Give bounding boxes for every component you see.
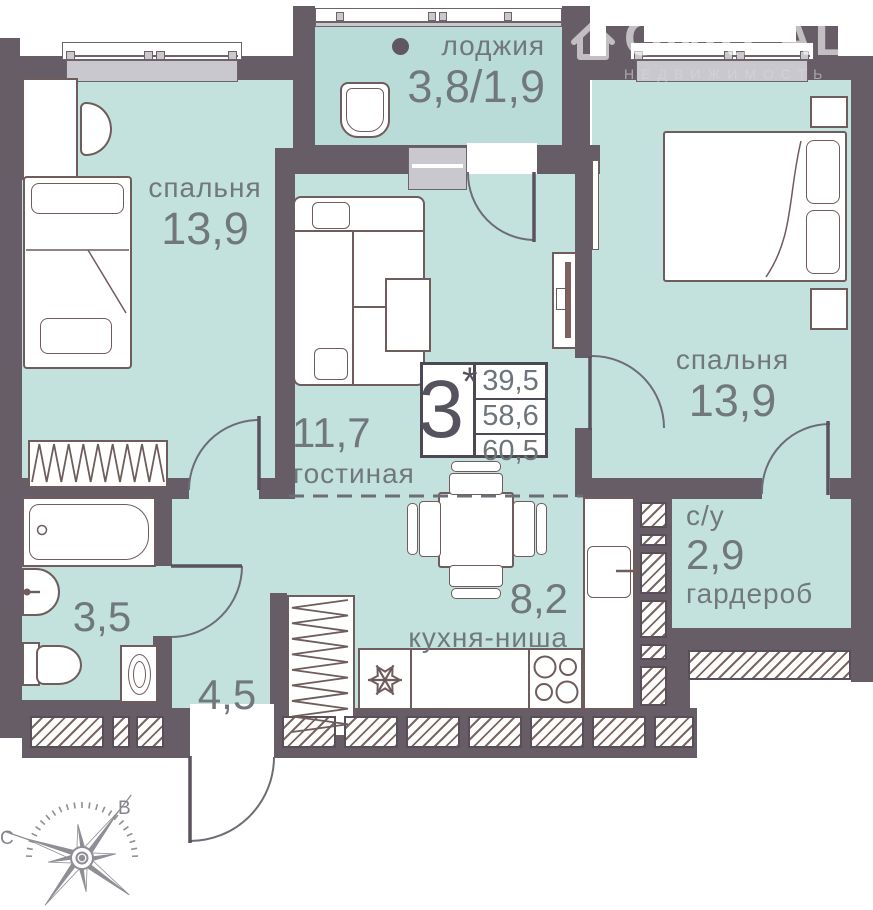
room-area: 13,9 (110, 204, 300, 254)
watermark-house-icon (566, 12, 620, 66)
bedroom-right-label-block: спальня 13,9 (635, 344, 830, 426)
wall-loggia-left (293, 6, 315, 150)
vent-shaft (640, 666, 667, 706)
pillow (806, 140, 840, 204)
glazing-mullion (439, 12, 447, 21)
bathtub-inner (29, 504, 149, 560)
room-area: 8,2 (370, 576, 568, 622)
loggia-label-block: лоджия 3,8/1,9 (330, 30, 545, 112)
washing-machine-door-inner (133, 661, 146, 688)
wall-hatch (136, 716, 164, 748)
wall-wardrobe-bottom (672, 628, 855, 650)
wall-hatch (30, 716, 104, 748)
door-opening (762, 478, 830, 499)
glazing-mullion (504, 12, 512, 21)
vent-shaft (640, 502, 667, 528)
room-area: 3,8/1,9 (330, 62, 545, 112)
kitchen-label-block: 8,2 кухня-ниша (370, 576, 568, 654)
floor-plan: С В лоджия 3,8/1,9 спальня 13,9 спальня … (0, 0, 873, 910)
rooms-count-cell: 3 * (423, 365, 476, 455)
areas-cells: 39,5 58,6 60,5 (476, 365, 545, 455)
tv-bracket (556, 288, 566, 310)
balcony-window-line (412, 164, 463, 168)
wc-wardrobe-label-block: с/у 2,9 гардероб (686, 500, 813, 610)
wardrobe-rail (28, 440, 168, 488)
room-label: лоджия (442, 30, 545, 61)
kitchen-sink (587, 546, 631, 598)
wall-right (851, 56, 873, 682)
chair-seat (449, 473, 503, 495)
room-label: спальня (110, 172, 300, 204)
wall-hatch (688, 650, 851, 680)
chair-back (407, 503, 418, 555)
room-label: спальня (635, 344, 830, 376)
door-opening (153, 566, 172, 636)
toilet-bowl (36, 645, 82, 685)
area-total: 60,5 (476, 435, 545, 468)
wall-hatch (468, 716, 522, 748)
door-arc-entrance (190, 757, 274, 841)
bed-bench (40, 318, 112, 354)
sofa-pillow (312, 202, 350, 229)
door-opening-balcony (467, 143, 537, 174)
desk (22, 78, 78, 180)
window-hinge (228, 51, 237, 60)
door-opening (575, 358, 592, 428)
kitchen-counter (410, 648, 530, 710)
chair-back (536, 503, 547, 555)
living-label: гостиная (293, 458, 415, 490)
wall-hatch (282, 716, 336, 748)
room-label: гардероб (686, 578, 813, 610)
area-living: 39,5 (476, 365, 545, 400)
watermark-subtitle: НЕДВИЖИМОСТЬ (624, 66, 847, 82)
window-hinge (156, 51, 165, 60)
room-area: 2,9 (686, 532, 813, 578)
loggia-glazing-band (315, 22, 562, 27)
nightstand (810, 96, 848, 128)
coffee-table (385, 278, 431, 352)
watermark: ONREAL НЕДВИЖИМОСТЬ (566, 12, 866, 82)
loggia-dot-icon (392, 38, 409, 55)
area-no-balcony: 58,6 (476, 400, 545, 435)
room-label: кухня-ниша (370, 622, 568, 654)
wall-living-bedroom (575, 148, 592, 358)
rooms-count: 3 (418, 369, 464, 451)
wall-hatch (530, 716, 584, 748)
vent-shaft (640, 644, 667, 660)
balcony-window (408, 147, 467, 190)
wall-hatch (654, 716, 694, 748)
watermark-text: ONREAL НЕДВИЖИМОСТЬ (624, 12, 847, 82)
sofa-line (294, 230, 424, 232)
compass-rose (6, 795, 138, 905)
nightstand (810, 288, 848, 330)
kitchen-counter-right (583, 497, 635, 710)
glazing-mullion (336, 12, 344, 21)
apartment-spec-box: 3 * 39,5 58,6 60,5 (420, 362, 548, 458)
wall-left (0, 56, 22, 738)
sofa-line (352, 232, 354, 384)
sofa-pillow (314, 348, 348, 380)
compass-north-label: С (0, 828, 14, 849)
vent-shaft (640, 600, 667, 638)
tv-icon (592, 160, 599, 250)
window-sill (66, 60, 238, 82)
stove (528, 648, 583, 710)
room-label: с/у (686, 500, 813, 532)
bathroom-area: 3,5 (70, 594, 134, 640)
vent-shaft (640, 552, 667, 594)
window-hinge (144, 51, 153, 60)
bedroom-left-label-block: спальня 13,9 (110, 172, 300, 254)
compass-east-label: В (118, 798, 131, 819)
hallway-area: 4,5 (192, 672, 262, 718)
wall-hatch (592, 716, 646, 748)
glazing-mullion (428, 12, 436, 21)
watermark-brand: ONREAL (624, 12, 847, 64)
wall-living-bedroom (575, 428, 592, 497)
wall-hatch (406, 716, 460, 748)
door-opening (189, 478, 259, 499)
chair-seat (419, 501, 441, 557)
fridge (358, 648, 412, 710)
wall-hatch (112, 716, 130, 748)
room-area: 13,9 (635, 376, 830, 426)
window-hinge (66, 51, 75, 60)
living-area: 11,7 (292, 410, 367, 456)
dining-table (438, 492, 514, 568)
wall-stub (0, 38, 20, 58)
wall-hatch (344, 716, 398, 748)
vent-shaft (640, 534, 667, 546)
chair-seat (513, 501, 535, 557)
pillow (806, 210, 840, 274)
